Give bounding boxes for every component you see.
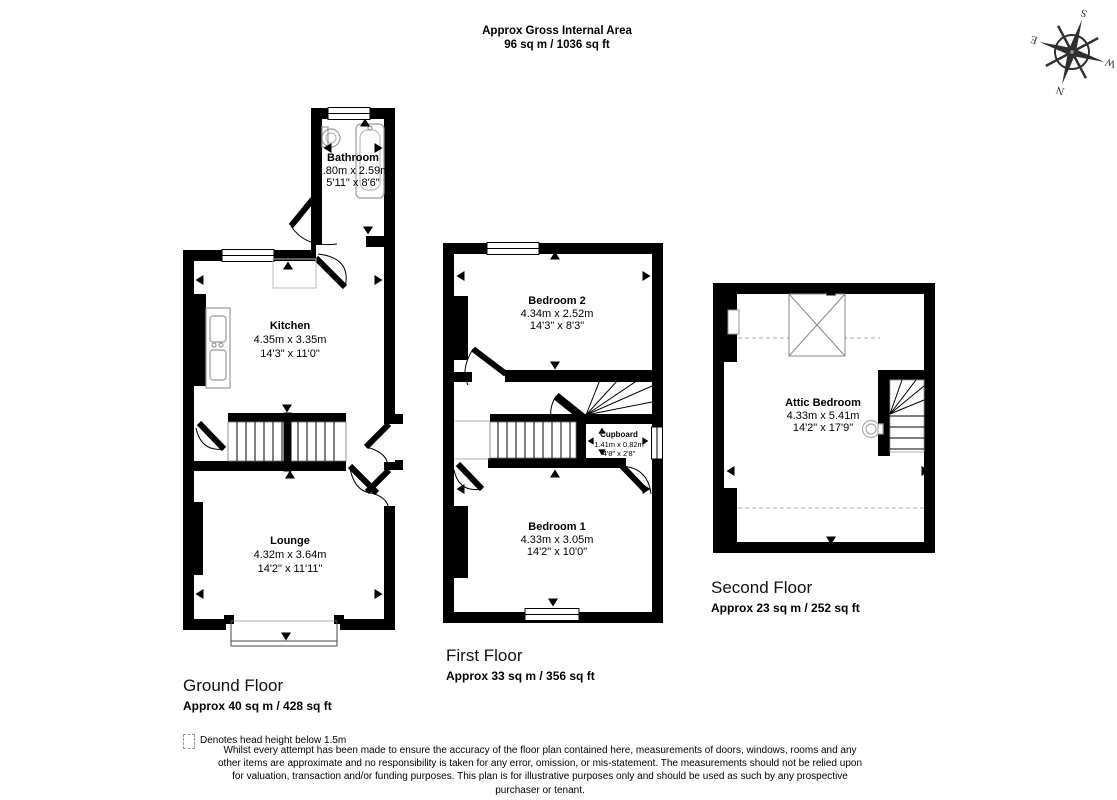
floor-title: Second Floor [711,578,860,598]
floor-title: First Floor [446,646,595,666]
compass-n: N [1055,83,1066,97]
compass-e: E [1029,33,1039,47]
window [728,310,739,334]
room-label-lounge: Lounge 4.32m x 3.64m 14'2" x 11'11" [190,534,390,576]
floor-title: Ground Floor [183,676,332,696]
gross-internal-area-header: Approx Gross Internal Area 96 sq m / 103… [357,25,757,52]
room-label-attic-bedroom: Attic Bedroom 4.33m x 5.41m 14'2" x 17'9… [723,397,923,435]
room-label-cupboard: Cupboard 1.41m x 0.82m 4'8" x 2'8" [579,430,659,459]
bay-window [224,615,344,646]
room-label-bedroom-2: Bedroom 2 4.34m x 2.52m 14'3" x 8'3" [457,295,657,333]
floor-area: Approx 40 sq m / 428 sq ft [183,699,332,713]
compass-s: S [1079,6,1088,19]
ground-floor-caption: Ground Floor Approx 40 sq m / 428 sq ft [183,676,332,713]
disclaimer-text: Whilst every attempt has been made to en… [215,744,865,797]
skylight-icon [789,294,845,356]
header-title: Approx Gross Internal Area [357,25,757,39]
second-floor-caption: Second Floor Approx 23 sq m / 252 sq ft [711,578,860,615]
compass-w: W [1103,55,1117,70]
room-label-bedroom-1: Bedroom 1 4.33m x 3.05m 14'2" x 10'0" [457,521,657,559]
room-label-kitchen: Kitchen 4.35m x 3.35m 14'3" x 11'0" [190,319,390,361]
head-height-legend-swatch [183,734,195,749]
header-area: 96 sq m / 1036 sq ft [357,39,757,53]
first-floor-caption: First Floor Approx 33 sq m / 356 sq ft [446,646,595,683]
compass-rose-icon: N S E W [1017,0,1117,109]
floorplan-page: N S E W Approx Gross Internal Area 96 sq… [0,0,1117,800]
room-label-bathroom: Bathroom 1.80m x 2.59m 5'11" x 8'6" [288,152,418,190]
floor-area: Approx 33 sq m / 356 sq ft [446,669,595,683]
floor-area: Approx 23 sq m / 252 sq ft [711,601,860,615]
